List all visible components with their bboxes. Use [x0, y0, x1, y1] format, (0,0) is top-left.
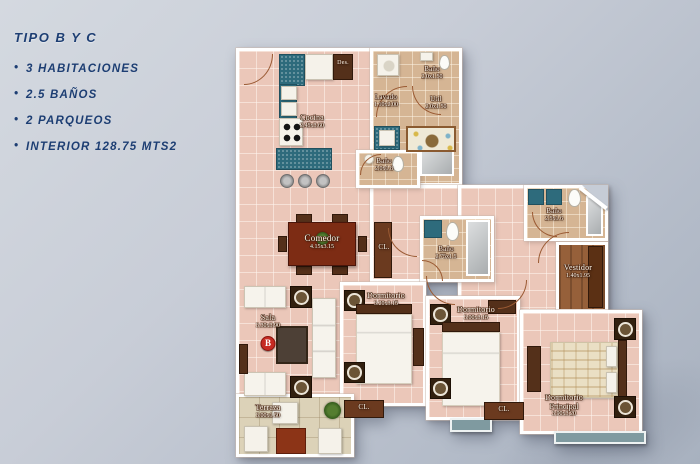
label-dormitorio-2: Dormitorio 3.00x3.15: [457, 306, 495, 321]
pillow-dp-1: [606, 346, 617, 367]
vanity-mid-bath: [424, 220, 442, 238]
label-despensa: Des.: [337, 60, 349, 66]
sofa-bottom: [244, 372, 286, 396]
toilet-tr-bath: [568, 189, 581, 207]
pillow-dp-2: [606, 372, 617, 393]
speaker-d2-bottom: [430, 378, 451, 399]
label-banio-servicio-sup: Baño 2.0x1.50: [422, 66, 443, 80]
bar-stool-3: [316, 174, 330, 188]
vanity-tr-bath-1: [528, 189, 544, 205]
label-banio-principal: Baño 2.5x1.6: [545, 208, 563, 222]
sink-service-top: [420, 52, 433, 61]
type-b-badge: B: [261, 336, 276, 351]
label-dormitorio-1: Dormitorio 3.20x3.15: [367, 292, 405, 307]
kitchen-island: [276, 148, 332, 170]
dining-chair-bottom-2: [332, 266, 348, 275]
label-banio-comun: Baño 2.75x1.5: [436, 246, 457, 260]
dresser-principal: [527, 346, 541, 392]
balcony-ledge-small: [450, 418, 492, 432]
label-closet-d2: CL.: [498, 406, 509, 414]
label-cocina: Cocina 2.45x3.60: [300, 114, 324, 129]
speaker-d1-bottom: [344, 362, 365, 383]
label-lavado: Lavado 1.10x2.00: [374, 94, 398, 108]
label-comedor: Comedor 4.15x3.15: [305, 234, 340, 250]
label-sala: Sala 3.30x3.90: [256, 314, 280, 329]
pantry-cabinet: [333, 54, 353, 80]
label-closet-hall: CL.: [378, 244, 389, 252]
service-shelf: [420, 148, 454, 176]
speaker-dp-bottom: [614, 396, 636, 418]
feature-parqueos: 2 PARQUEOS: [26, 115, 234, 127]
slide-background: TIPO B Y C 3 HABITACIONES 2.5 BAÑOS 2 PA…: [0, 0, 700, 464]
side-table-sala: [239, 344, 248, 374]
plan-type-title: TIPO B Y C: [14, 30, 234, 45]
label-dormitorio-principal: Dormitorio Principal 3.90x3.20: [545, 394, 583, 418]
toilet-service-bath: [392, 156, 404, 172]
label-closet-d1: CL.: [358, 404, 369, 412]
dining-chair-left: [278, 236, 287, 252]
toilet-mid-bath: [446, 222, 459, 241]
washer: [377, 54, 399, 76]
shower-tray: [379, 130, 395, 146]
kitchen-sink-1: [281, 86, 297, 100]
dining-chair-right: [358, 236, 367, 252]
feature-interior-area: INTERIOR 128.75 MTS2: [26, 141, 234, 153]
speaker-sala-bottom: [290, 376, 312, 398]
kitchen-sink-2: [281, 102, 297, 116]
terrace-chair-left: [244, 426, 268, 452]
info-panel: TIPO B Y C 3 HABITACIONES 2.5 BAÑOS 2 PA…: [14, 30, 234, 167]
kitchen-counter-top: [279, 54, 305, 86]
speaker-dp-top: [614, 318, 636, 340]
vanity-tr-bath-2: [546, 189, 562, 205]
terrace-mat: [276, 428, 306, 454]
sala-rug: [276, 326, 308, 364]
speaker-sala-top: [290, 286, 312, 308]
terrace-chair-right: [318, 428, 342, 454]
label-vestidor: Vestidor 1.40x1.95: [564, 264, 592, 279]
bar-stool-2: [298, 174, 312, 188]
util-rug: [406, 126, 456, 152]
floor-plan: Cocina 2.45x3.60 Des. Baño 2.0x1.50 Lava…: [236, 46, 644, 460]
shower-mid-bath: [466, 220, 490, 276]
balcony-ledge-principal: [554, 431, 646, 444]
bar-stool-1: [280, 174, 294, 188]
terrace-plant: [324, 402, 341, 419]
sofa-right: [312, 298, 336, 378]
sofa-top: [244, 286, 286, 308]
label-banio-servicio: Baño 2.0x1.8: [375, 158, 393, 172]
feature-banos: 2.5 BAÑOS: [26, 89, 234, 101]
feature-habitaciones: 3 HABITACIONES: [26, 63, 234, 75]
label-util: Util 2.0x1.50: [426, 96, 447, 110]
feature-list: 3 HABITACIONES 2.5 BAÑOS 2 PARQUEOS INTE…: [14, 63, 234, 153]
headboard-d2: [442, 322, 500, 332]
fridge: [305, 54, 333, 80]
label-terraza: Terraza 3.00x1.50: [255, 404, 280, 419]
nightstand-d1: [413, 328, 424, 366]
headboard-dp: [618, 340, 627, 400]
dining-chair-bottom-1: [296, 266, 312, 275]
